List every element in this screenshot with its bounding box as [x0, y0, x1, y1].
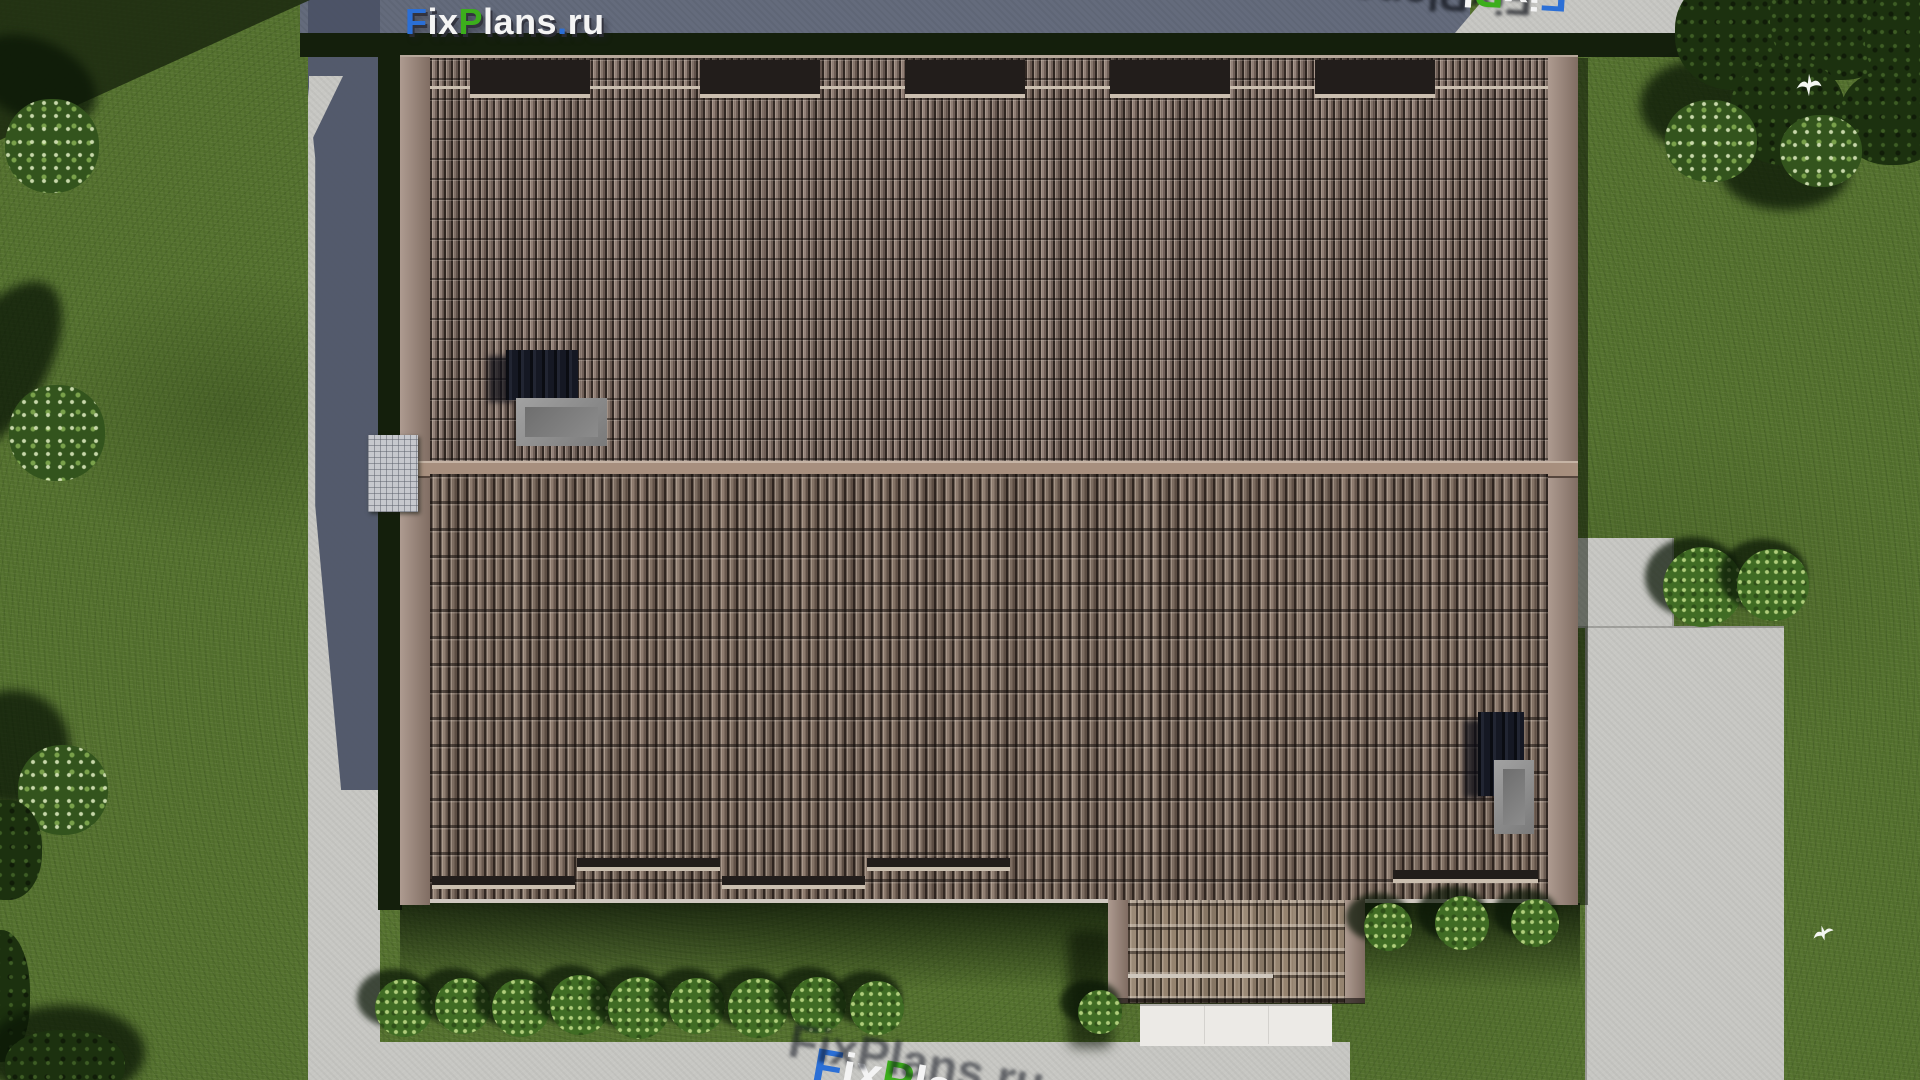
porch-canopy-seam: [1204, 1006, 1205, 1044]
roof-step-bar-bottom: [577, 858, 720, 867]
roof-ridge-ledge: [430, 86, 470, 89]
roof-fascia-right: [1548, 57, 1578, 905]
roof-step-bar-bottom: [722, 876, 865, 885]
roof-ridge-ledge: [820, 86, 905, 89]
logo-letters-ix: ix: [838, 1044, 887, 1080]
chimney-1-cap-inner: [525, 407, 598, 437]
logo-letter-p: P: [1473, 0, 1505, 17]
chimney-2-cap-inner: [1503, 769, 1525, 825]
logo-letters-lans: lans: [1386, 0, 1477, 15]
porch-canopy: [1140, 1004, 1332, 1046]
grass-shadow-under-roof: [400, 903, 1580, 991]
roof-step-ledge-bottom: [867, 867, 1010, 871]
logo-letters-ru: ru: [1329, 0, 1376, 9]
roof-eave-line: [1365, 899, 1548, 903]
roof-lower-slope: [430, 474, 1548, 903]
logo-letters-ix: ix: [428, 1, 459, 42]
grass-shadow-right-of-roof: [1578, 58, 1588, 905]
roof-step-bar: [1315, 60, 1435, 94]
roof-ridge-ledge: [1230, 86, 1315, 89]
bush: [1665, 100, 1757, 182]
roof-ridge-ledge: [1435, 86, 1548, 89]
watermark-fixplans-main: FixPlans.ru: [405, 1, 605, 43]
roof-step-bar: [905, 60, 1025, 94]
tree: [9, 385, 105, 481]
tree-cluster-top-right: [1630, 0, 1920, 270]
aerial-render-scene: FixPlans.ru FixPlans.ru FixPlans.ru: [0, 0, 1920, 1080]
extension-fascia-right: [1345, 900, 1365, 1003]
roof-step-bar-bottom: [432, 876, 575, 885]
extension-fascia-left: [1108, 900, 1128, 1003]
roof-step-ledge: [1110, 94, 1230, 98]
logo-letter-f: F: [1539, 0, 1569, 21]
roof-entrance-extension: [1128, 900, 1345, 1003]
logo-letters-lans: lans: [483, 1, 557, 42]
chimney-2-cap: [1494, 760, 1534, 834]
bush: [1780, 115, 1862, 187]
roof-step-ledge-bottom: [1393, 879, 1538, 883]
skylight-grid: [368, 435, 418, 512]
roof-step-bar-bottom: [1393, 870, 1538, 879]
roof-step-bar: [700, 60, 820, 94]
roof-step-bar-bottom: [867, 858, 1010, 867]
roof-ridge-ledge: [590, 86, 700, 89]
roof-step-ledge: [470, 94, 590, 98]
roof-step-ledge: [700, 94, 820, 98]
tree-canopy-fragment: [5, 1030, 125, 1080]
roof-eave-line: [430, 899, 1108, 903]
roof-step-ledge: [1315, 94, 1435, 98]
tree: [5, 99, 99, 193]
right-patio: [1585, 626, 1784, 1080]
roof-step-ledge-bottom: [722, 885, 865, 889]
chimney-1-cap: [516, 398, 607, 446]
logo-letter-f: F: [405, 1, 428, 42]
roof-step-ledge-bottom: [432, 885, 575, 889]
roof-step-bar: [470, 60, 590, 94]
roof-step-ledge: [905, 94, 1025, 98]
roof-ridge-ledge: [1025, 86, 1110, 89]
logo-dot: .: [557, 1, 568, 42]
logo-letters-ru: ru: [568, 1, 605, 42]
grass-shadow-left-of-extension: [1068, 930, 1112, 1048]
roof-step-bar: [1110, 60, 1230, 94]
chimney-1: [506, 350, 578, 400]
bird-icon: [1794, 70, 1824, 100]
logo-letters-ix: ix: [1503, 0, 1543, 19]
logo-letter-p: P: [459, 1, 484, 42]
extension-ridge-line: [1128, 974, 1273, 978]
roof-step-ledge-bottom: [577, 867, 720, 871]
porch-canopy-seam: [1268, 1006, 1269, 1044]
